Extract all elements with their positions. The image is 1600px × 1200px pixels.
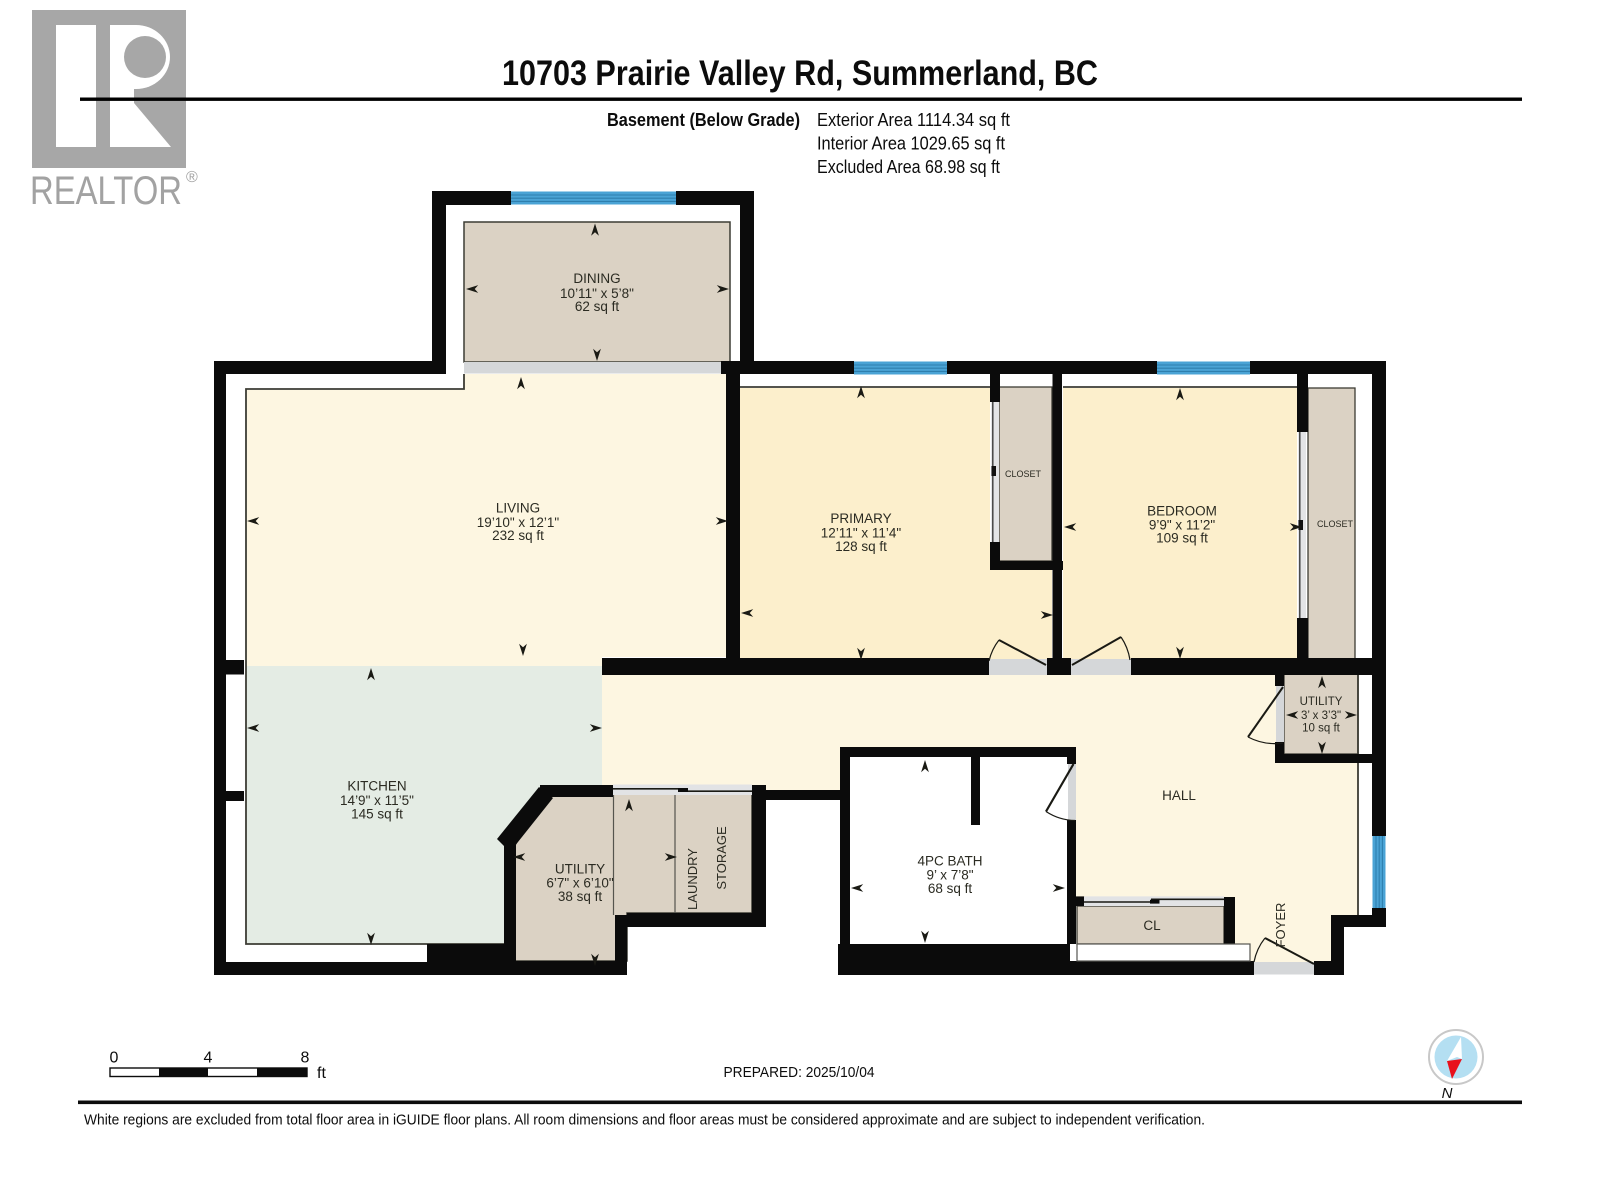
svg-text:REALTOR: REALTOR: [30, 169, 182, 213]
svg-text:DINING: DINING: [573, 271, 620, 286]
svg-text:UTILITY: UTILITY: [1300, 696, 1343, 708]
svg-text:LAUNDRY: LAUNDRY: [685, 848, 700, 910]
svg-text:Excluded Area 68.98 sq ft: Excluded Area 68.98 sq ft: [817, 157, 1000, 177]
svg-text:8: 8: [301, 1050, 310, 1067]
svg-text:CLOSET: CLOSET: [1317, 519, 1354, 529]
svg-text:CL: CL: [1143, 918, 1161, 933]
svg-text:PREPARED: 2025/10/04: PREPARED: 2025/10/04: [724, 1064, 875, 1081]
svg-text:PRIMARY: PRIMARY: [830, 511, 891, 526]
svg-text:Exterior Area 1114.34 sq ft: Exterior Area 1114.34 sq ft: [817, 110, 1010, 130]
svg-text:LIVING: LIVING: [496, 501, 540, 516]
svg-text:White regions are excluded fro: White regions are excluded from total fl…: [84, 1113, 1205, 1129]
svg-text:STORAGE: STORAGE: [714, 826, 729, 890]
svg-text:62 sq ft: 62 sq ft: [575, 299, 620, 314]
svg-text:FOYER: FOYER: [1273, 903, 1288, 948]
svg-text:UTILITY: UTILITY: [555, 862, 605, 877]
svg-text:10703 Prairie Valley Rd, Summe: 10703 Prairie Valley Rd, Summerland, BC: [502, 53, 1098, 93]
svg-text:4: 4: [204, 1050, 213, 1067]
svg-text:KITCHEN: KITCHEN: [347, 779, 406, 794]
svg-text:128 sq ft: 128 sq ft: [835, 539, 887, 554]
svg-text:68 sq ft: 68 sq ft: [928, 881, 973, 896]
svg-text:0: 0: [110, 1050, 119, 1067]
svg-text:®: ®: [186, 169, 198, 186]
svg-text:145 sq ft: 145 sq ft: [351, 807, 403, 822]
svg-text:CLOSET: CLOSET: [1005, 469, 1042, 479]
svg-text:ft: ft: [317, 1065, 326, 1082]
svg-text:HALL: HALL: [1162, 788, 1196, 803]
svg-text:10 sq ft: 10 sq ft: [1302, 723, 1341, 735]
svg-text:N: N: [1442, 1085, 1453, 1102]
svg-text:Basement (Below Grade): Basement (Below Grade): [607, 110, 800, 130]
svg-text:Interior Area 1029.65 sq ft: Interior Area 1029.65 sq ft: [817, 134, 1005, 154]
svg-text:BEDROOM: BEDROOM: [1147, 504, 1217, 519]
svg-text:3’ x 3’3": 3’ x 3’3": [1301, 710, 1341, 722]
svg-text:109 sq ft: 109 sq ft: [1156, 531, 1208, 546]
svg-text:232 sq ft: 232 sq ft: [492, 528, 544, 543]
svg-text:38 sq ft: 38 sq ft: [558, 889, 603, 904]
svg-text:4PC BATH: 4PC BATH: [917, 854, 982, 869]
